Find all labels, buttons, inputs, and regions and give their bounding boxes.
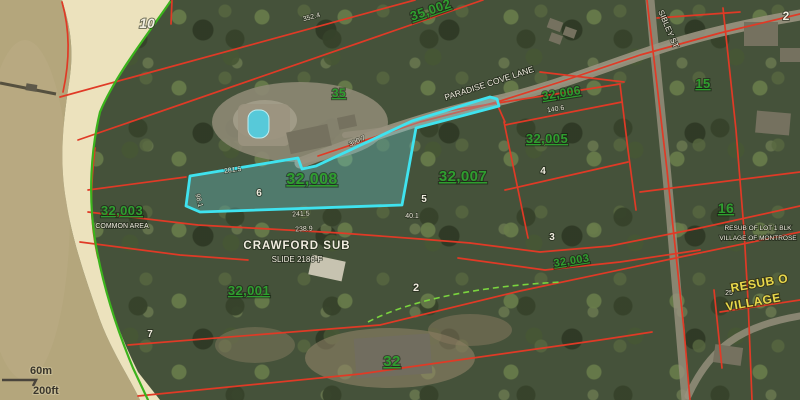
parcel-label-16: 16 xyxy=(718,200,734,216)
bare-ground xyxy=(428,314,512,346)
parcel-label-32001: 32,001 xyxy=(228,283,270,298)
dimension-label: 238.9 xyxy=(295,226,313,234)
dimension-label: 352.4 xyxy=(302,12,321,23)
dimension-label: 241.5 xyxy=(292,211,310,219)
parcel-label-32007: 32,007 xyxy=(439,168,487,185)
lot-number-4: 4 xyxy=(540,166,546,177)
boundary-line xyxy=(657,12,740,18)
parcel-label-32: 32 xyxy=(383,353,401,370)
parcel-label-2-white: 2 xyxy=(783,9,790,23)
parcel-label-15: 15 xyxy=(695,76,710,91)
swimming-pool xyxy=(248,110,269,138)
boundary-line xyxy=(620,84,636,210)
driveway-bottom-right xyxy=(688,316,800,396)
subdivision-slide: SLIDE 2186-F xyxy=(272,255,323,264)
resub-note-line1: RESUB OF LOT 1 BLK xyxy=(724,225,792,232)
lot-number-3: 3 xyxy=(549,232,555,243)
building-roof xyxy=(755,111,791,136)
parcel-label-10: 10 xyxy=(139,15,155,31)
boundary-line xyxy=(505,162,628,190)
shore-boundary-red xyxy=(171,0,172,24)
building-roof xyxy=(563,26,577,39)
scale-metric-label: 60m xyxy=(30,365,52,377)
resub-yellow-line1: RESUB O xyxy=(729,271,789,295)
parcel-label-35002: 35,002 xyxy=(408,0,453,24)
parcel-label-35: 35 xyxy=(332,86,346,100)
building-roof xyxy=(780,48,800,62)
building-roof xyxy=(547,18,564,32)
building-roof xyxy=(713,344,743,366)
boundary-line xyxy=(80,242,248,260)
boundary-line xyxy=(504,122,528,238)
boundary-line xyxy=(88,177,186,190)
dimension-label: 40.1 xyxy=(405,213,419,220)
subdivision-name: CRAWFORD SUB xyxy=(243,240,350,252)
east-road xyxy=(650,0,686,400)
parcel-map-canvas[interactable]: 35,002 35 32,006 32,005 32,007 32,008 32… xyxy=(0,0,800,400)
parcel-label-32005: 32,005 xyxy=(526,131,568,146)
common-area-label: COMMON AREA xyxy=(95,223,149,230)
lot-number-2: 2 xyxy=(413,282,419,294)
lot-number-5: 5 xyxy=(421,194,427,205)
scale-imperial-label: 200ft xyxy=(33,385,59,397)
lot-number-6: 6 xyxy=(256,188,262,199)
resub-note-line2: VILLAGE OF MONTROSE xyxy=(719,235,797,242)
building-roof xyxy=(549,32,563,45)
parcel-label-32008: 32,008 xyxy=(286,171,337,188)
lot-number-7: 7 xyxy=(147,329,153,340)
parcel-label-32003-beach: 32,003 xyxy=(101,203,143,218)
